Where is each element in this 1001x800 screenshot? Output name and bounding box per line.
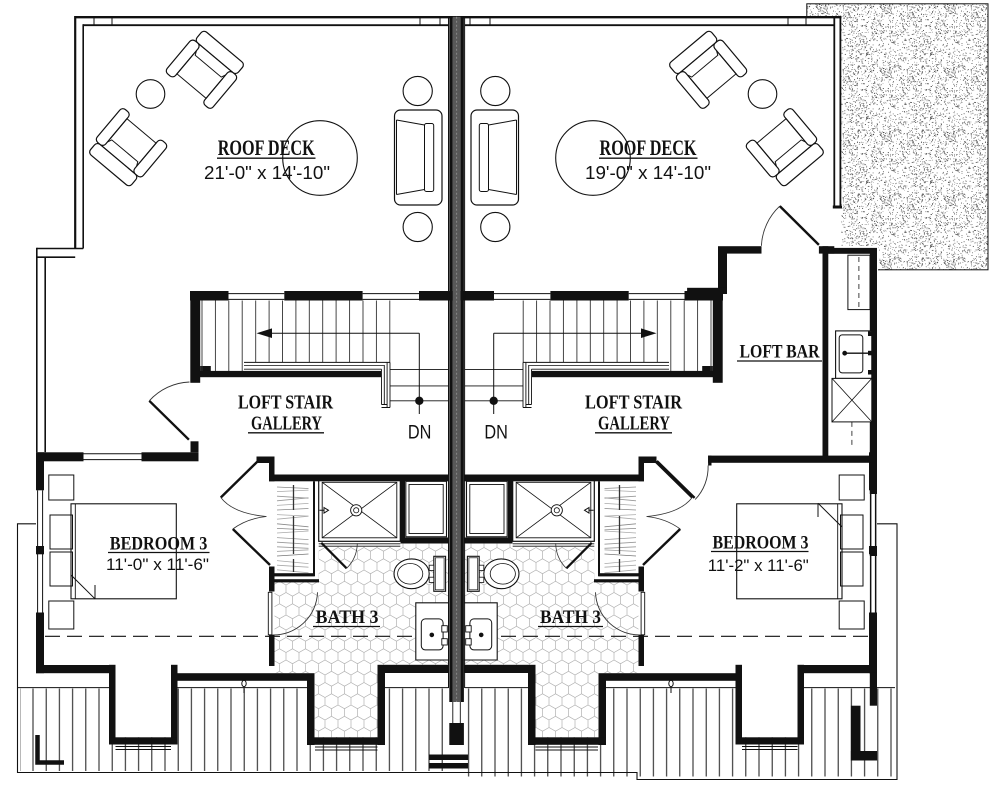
svg-text:BEDROOM 3: BEDROOM 3 bbox=[713, 534, 809, 554]
svg-text:21'-0" x 14'-10": 21'-0" x 14'-10" bbox=[204, 162, 330, 183]
svg-text:BEDROOM 3: BEDROOM 3 bbox=[110, 535, 208, 555]
svg-text:BATH 3: BATH 3 bbox=[316, 607, 379, 628]
svg-text:BATH 3: BATH 3 bbox=[540, 607, 601, 628]
svg-text:DN: DN bbox=[484, 423, 508, 444]
svg-text:ROOF DECK: ROOF DECK bbox=[600, 135, 697, 160]
svg-text:GALLERY: GALLERY bbox=[598, 413, 670, 435]
svg-text:DN: DN bbox=[408, 423, 432, 444]
svg-text:ROOF DECK: ROOF DECK bbox=[218, 135, 315, 160]
svg-text:LOFT STAIR: LOFT STAIR bbox=[238, 392, 333, 414]
svg-text:LOFT BAR: LOFT BAR bbox=[740, 342, 820, 363]
svg-text:19'-0" x 14'-10": 19'-0" x 14'-10" bbox=[585, 162, 711, 183]
svg-text:LOFT STAIR: LOFT STAIR bbox=[585, 392, 682, 414]
svg-text:11'-0" x 11'-6": 11'-0" x 11'-6" bbox=[106, 555, 209, 574]
svg-text:GALLERY: GALLERY bbox=[251, 413, 322, 435]
svg-text:11'-2" x 11'-6": 11'-2" x 11'-6" bbox=[708, 556, 809, 575]
